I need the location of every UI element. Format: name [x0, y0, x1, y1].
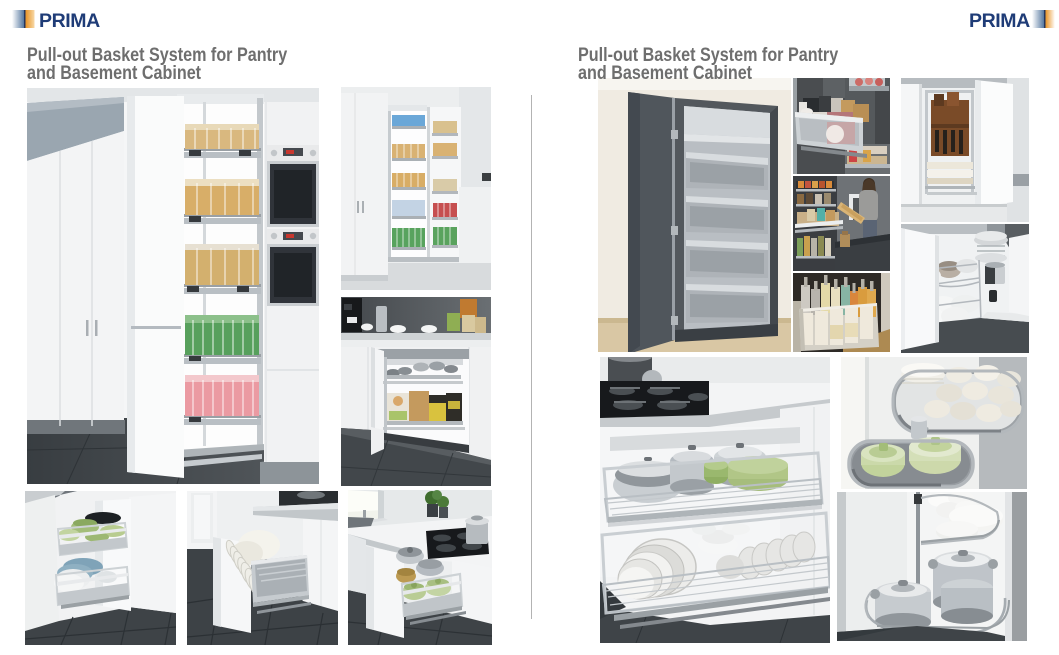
svg-text:PRIMA: PRIMA	[969, 10, 1030, 30]
svg-text:PRIMA: PRIMA	[39, 10, 100, 30]
